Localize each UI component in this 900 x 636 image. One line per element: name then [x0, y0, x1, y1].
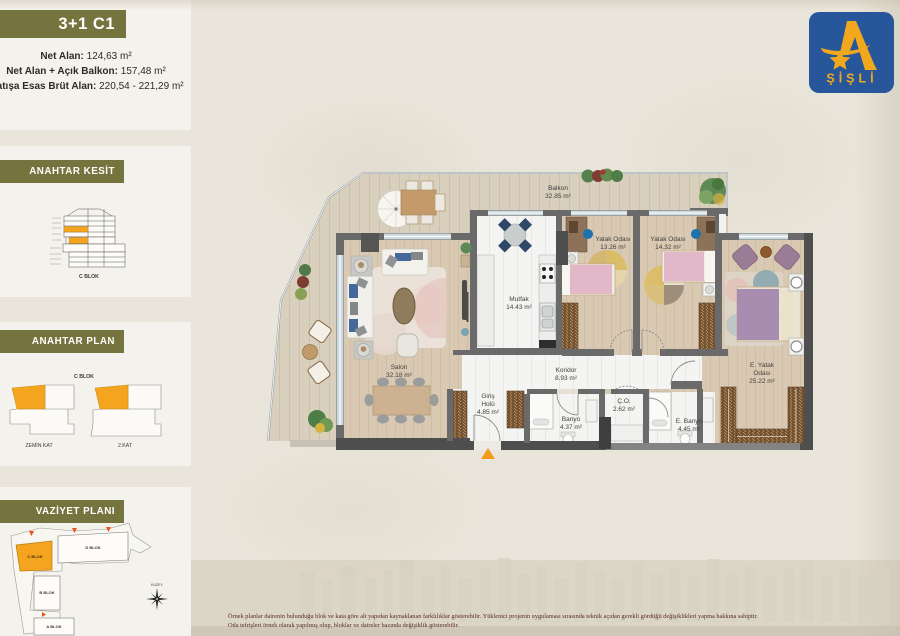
svg-text:8.93 m²: 8.93 m² [555, 375, 578, 382]
svg-text:32.18 m²: 32.18 m² [386, 372, 412, 379]
svg-text:13.26 m²: 13.26 m² [600, 244, 626, 251]
svg-text:ŞİŞLİ: ŞİŞLİ [826, 71, 877, 86]
svg-text:Salon: Salon [391, 364, 408, 371]
svg-text:Yatak Odası: Yatak Odası [650, 236, 685, 243]
svg-text:Ç.O.: Ç.O. [617, 398, 631, 405]
svg-text:C BLOK: C BLOK [79, 274, 99, 280]
svg-text:Balkon: Balkon [548, 185, 568, 192]
svg-text:Giriş: Giriş [481, 393, 495, 400]
svg-text:Banyo: Banyo [562, 416, 581, 423]
svg-text:Mutfak: Mutfak [509, 296, 529, 303]
svg-text:C BLOK: C BLOK [74, 374, 94, 380]
svg-text:B BLOK: B BLOK [39, 590, 54, 595]
svg-text:D BLOK: D BLOK [85, 545, 100, 550]
svg-text:4.37 m²: 4.37 m² [560, 424, 583, 431]
svg-text:2.62 m²: 2.62 m² [613, 406, 636, 413]
svg-text:4.85 m²: 4.85 m² [477, 409, 500, 416]
svg-text:KUZEY: KUZEY [151, 583, 163, 587]
svg-text:14.43 m²: 14.43 m² [506, 304, 532, 311]
svg-text:14.32 m²: 14.32 m² [655, 244, 681, 251]
svg-text:Odası: Odası [753, 370, 771, 377]
svg-text:ZEMİN KAT: ZEMİN KAT [25, 442, 53, 449]
svg-text:C BLOK: C BLOK [27, 554, 42, 559]
svg-text:Holü: Holü [481, 401, 495, 408]
svg-text:25.22 m²: 25.22 m² [749, 378, 775, 385]
svg-text:A BLOK: A BLOK [46, 624, 61, 629]
svg-text:E. Yatak: E. Yatak [750, 362, 775, 369]
svg-text:2.KAT: 2.KAT [118, 443, 133, 449]
svg-text:Yatak Odası: Yatak Odası [595, 236, 630, 243]
svg-text:4.45 m²: 4.45 m² [678, 426, 701, 433]
svg-text:32.85 m²: 32.85 m² [545, 193, 571, 200]
svg-text:Koridor: Koridor [556, 367, 578, 374]
svg-text:E. Banyo: E. Banyo [676, 418, 703, 425]
